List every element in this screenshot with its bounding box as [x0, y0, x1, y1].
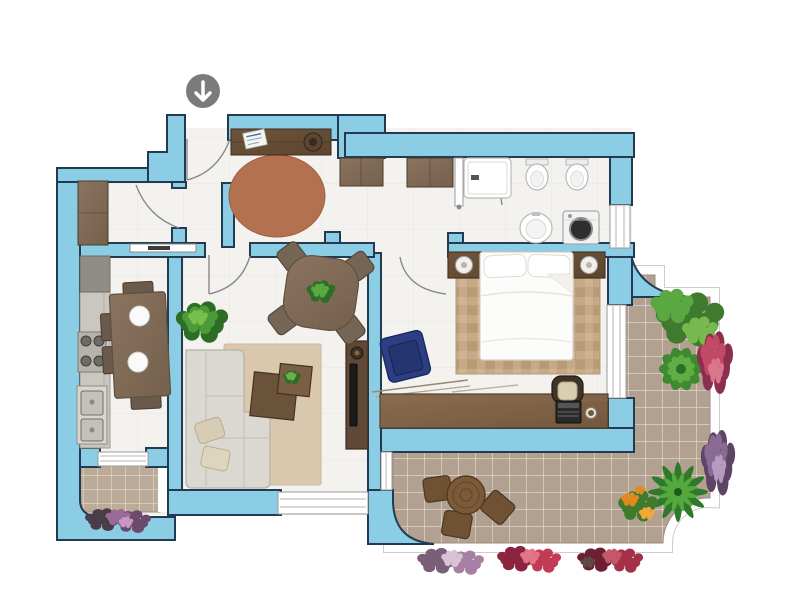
- double-bed: [480, 252, 573, 360]
- bathroom-corner-step: [448, 233, 463, 243]
- hall-door-jamb-top: [172, 182, 186, 188]
- desk-chair: [552, 376, 583, 403]
- bathroom-door-leaf: [455, 158, 463, 206]
- tv: [350, 364, 357, 426]
- bedroom-right-wall-low: [608, 398, 634, 432]
- pedestal-sink: [520, 212, 552, 243]
- kitchen-balcony-tiles: [77, 466, 160, 512]
- balcony-door: [98, 452, 148, 466]
- entry-left-wall: [148, 115, 185, 182]
- pillow: [483, 254, 526, 278]
- floor-plan-canvas: [0, 0, 800, 600]
- entrance-arrow-icon: [186, 74, 220, 108]
- exterior-notch: [158, 467, 168, 512]
- bedroom-bottom-wall: [381, 428, 634, 452]
- living-bedroom-wall: [368, 253, 381, 490]
- flower-bed-darkred: [577, 548, 643, 573]
- plate: [127, 352, 148, 373]
- floor-plan: [0, 0, 800, 600]
- entry-round-rug: [229, 155, 325, 237]
- kitchen-tall-cabinet: [80, 256, 110, 292]
- bedroom-window: [607, 305, 626, 398]
- pocket-door-handle: [148, 246, 170, 250]
- kitchen-bottom-wall-a: [80, 448, 100, 467]
- bathroom-right-wall: [610, 157, 632, 205]
- bidet: [526, 159, 548, 190]
- tv-console: [346, 341, 368, 449]
- living-window: [278, 492, 368, 514]
- bathroom-window: [610, 205, 630, 248]
- wall-notch: [325, 232, 340, 243]
- laptop: [556, 401, 581, 423]
- bathroom-door-knob: [457, 205, 462, 210]
- sideboard: [340, 158, 383, 186]
- washing-machine: [563, 211, 599, 244]
- bathroom-top-wall: [345, 133, 634, 157]
- kitchen-bottom-wall-b: [146, 448, 168, 467]
- shower-drain: [471, 175, 479, 180]
- toilet: [566, 159, 588, 190]
- living-bottom-wall: [168, 490, 281, 515]
- kitchen-sink: [77, 386, 107, 444]
- plate: [129, 305, 150, 326]
